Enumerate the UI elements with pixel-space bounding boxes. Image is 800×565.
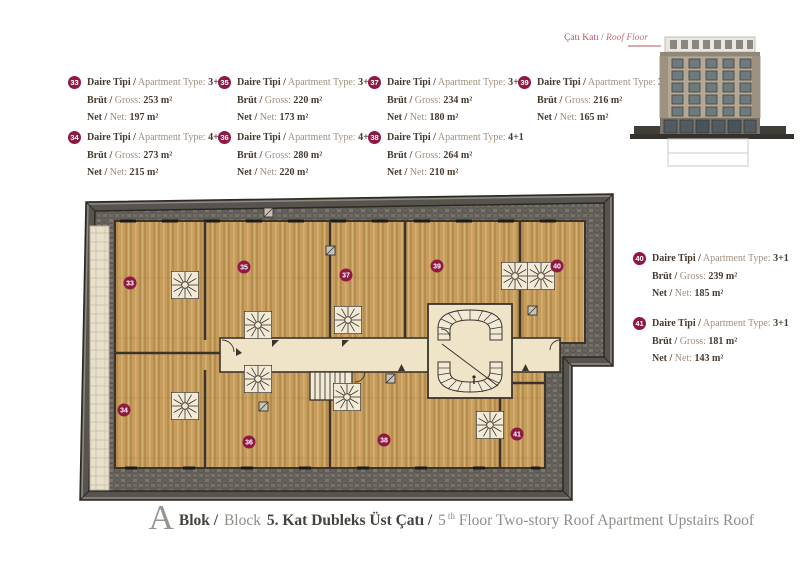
net-line: Net / Net: 143 m²: [652, 350, 793, 368]
gross-label-en: Gross:: [115, 150, 141, 161]
gross-label-en: Gross:: [415, 95, 441, 106]
apartment-type-line: Daire Tipi / Apartment Type: 3+1: [652, 250, 793, 268]
gross-label-en: Gross:: [680, 271, 706, 282]
block-letter: A: [149, 498, 174, 537]
net-label-tr: Net /: [652, 288, 672, 299]
central-core: [428, 304, 512, 398]
svg-text:35: 35: [240, 265, 248, 272]
cornice: [660, 52, 760, 56]
plan-badge-41: 41: [511, 428, 524, 441]
title-floor-rest: Floor Two-story Roof Apartment Upstairs …: [455, 512, 754, 529]
net-label-en: Net:: [560, 112, 577, 123]
gross-label-en: Gross:: [415, 150, 441, 161]
net-label-en: Net:: [675, 353, 692, 364]
net-label-tr: Net /: [652, 353, 672, 364]
gross-label-tr: Brüt /: [387, 95, 412, 106]
net-label-en: Net:: [260, 112, 277, 123]
gross-value: 264 m²: [443, 150, 472, 161]
gross-label-en: Gross:: [265, 150, 291, 161]
type-label-tr: Daire Tipi /: [87, 77, 136, 88]
net-value: 143 m²: [695, 353, 724, 364]
type-value: 3+1: [773, 253, 789, 264]
apartment-info-35: 35 Daire Tipi / Apartment Type: 3+1 Brüt…: [218, 74, 378, 127]
plan-badge-37: 37: [340, 269, 353, 282]
plan-badge-40: 40: [551, 260, 564, 273]
plan-badge-36: 36: [243, 436, 256, 449]
type-label-tr: Daire Tipi /: [87, 132, 136, 143]
gross-value: 181 m²: [708, 336, 737, 347]
plan-badge-34: 34: [118, 404, 131, 417]
apartment-type-line: Daire Tipi / Apartment Type: 4+1: [387, 129, 528, 147]
apartment-number-badge: 39: [518, 76, 531, 89]
floor-plan: 33 35 37 39 40 34 36 38 41: [60, 188, 620, 510]
apartment-number-badge: 41: [633, 317, 646, 330]
roof-floor-level: [665, 37, 755, 52]
gross-value: 273 m²: [143, 150, 172, 161]
apartment-info-41: 41 Daire Tipi / Apartment Type: 3+1 Brüt…: [633, 315, 793, 368]
apartment-type-line: Daire Tipi / Apartment Type: 4+1: [87, 129, 228, 147]
apartment-number-badge: 33: [68, 76, 81, 89]
gross-label-tr: Brüt /: [652, 336, 677, 347]
ground-floor: [634, 118, 786, 134]
type-label-en: Apartment Type:: [438, 132, 506, 143]
svg-text:37: 37: [342, 273, 350, 280]
apartment-type-line: Daire Tipi / Apartment Type: 3+1: [652, 315, 793, 333]
apartment-number-badge: 36: [218, 131, 231, 144]
gross-line: Brüt / Gross: 253 m²: [87, 92, 228, 110]
gross-label-tr: Brüt /: [537, 95, 562, 106]
net-value: 180 m²: [430, 112, 459, 123]
net-value: 185 m²: [695, 288, 724, 299]
net-line: Net / Net: 210 m²: [387, 164, 528, 182]
apartment-number-badge: 38: [368, 131, 381, 144]
title-floor-ordinal: th: [448, 511, 455, 521]
net-value: 210 m²: [430, 167, 459, 178]
basement-outline: [668, 139, 748, 166]
type-label-en: Apartment Type:: [703, 253, 771, 264]
type-label-tr: Daire Tipi /: [237, 77, 286, 88]
gross-value: 220 m²: [293, 95, 322, 106]
net-value: 197 m²: [130, 112, 159, 123]
svg-text:38: 38: [380, 438, 388, 445]
plan-badge-35: 35: [238, 261, 251, 274]
type-label-en: Apartment Type:: [288, 77, 356, 88]
gross-value: 280 m²: [293, 150, 322, 161]
svg-text:36: 36: [245, 440, 253, 447]
net-label-en: Net:: [410, 167, 427, 178]
gross-value: 239 m²: [708, 271, 737, 282]
apartment-type-line: Daire Tipi / Apartment Type: 4+1: [237, 129, 378, 147]
gross-label-en: Gross:: [680, 336, 706, 347]
gross-label-tr: Brüt /: [387, 150, 412, 161]
net-value: 215 m²: [130, 167, 159, 178]
title-floor-tr: 5. Kat Dubleks Üst Çatı /: [267, 512, 432, 529]
title-blok-tr: Blok /: [179, 512, 218, 529]
type-label-en: Apartment Type:: [138, 77, 206, 88]
type-value: 3+1: [773, 318, 789, 329]
building-elevation: [628, 26, 796, 168]
net-line: Net / Net: 220 m²: [237, 164, 378, 182]
type-label-tr: Daire Tipi /: [387, 77, 436, 88]
brochure-page: 33 Daire Tipi / Apartment Type: 3+1 Brüt…: [0, 0, 800, 565]
net-line: Net / Net: 215 m²: [87, 164, 228, 182]
apartment-type-line: Daire Tipi / Apartment Type: 3+1: [237, 74, 378, 92]
type-label-tr: Daire Tipi /: [237, 132, 286, 143]
gross-line: Brüt / Gross: 264 m²: [387, 147, 528, 165]
net-line: Net / Net: 173 m²: [237, 109, 378, 127]
type-label-tr: Daire Tipi /: [387, 132, 436, 143]
apartment-info-34: 34 Daire Tipi / Apartment Type: 4+1 Brüt…: [68, 129, 228, 182]
gross-value: 253 m²: [143, 95, 172, 106]
type-value: 4+1: [508, 132, 524, 143]
net-value: 220 m²: [280, 167, 309, 178]
apartment-number-badge: 35: [218, 76, 231, 89]
net-label-tr: Net /: [387, 112, 407, 123]
apartment-number-badge: 40: [633, 252, 646, 265]
apartment-info-37: 37 Daire Tipi / Apartment Type: 3+1 Brüt…: [368, 74, 528, 127]
svg-text:34: 34: [120, 408, 128, 415]
gross-label-tr: Brüt /: [87, 95, 112, 106]
title-floor-number: 5: [438, 512, 446, 529]
type-label-tr: Daire Tipi /: [537, 77, 586, 88]
terrace-walkway: [90, 226, 109, 490]
gross-value: 234 m²: [443, 95, 472, 106]
apartment-number-badge: 34: [68, 131, 81, 144]
apartment-type-line: Daire Tipi / Apartment Type: 3+1: [87, 74, 228, 92]
page-title: ABlok / Block 5. Kat Dubleks Üst Çatı / …: [149, 500, 758, 535]
type-label-tr: Daire Tipi /: [652, 253, 701, 264]
svg-text:33: 33: [126, 281, 134, 288]
net-line: Net / Net: 185 m²: [652, 285, 793, 303]
net-label-tr: Net /: [537, 112, 557, 123]
gross-label-tr: Brüt /: [237, 150, 262, 161]
net-value: 173 m²: [280, 112, 309, 123]
net-label-en: Net:: [110, 167, 127, 178]
net-label-tr: Net /: [87, 167, 107, 178]
type-label-tr: Daire Tipi /: [652, 318, 701, 329]
gross-line: Brüt / Gross: 273 m²: [87, 147, 228, 165]
apartment-info-36: 36 Daire Tipi / Apartment Type: 4+1 Brüt…: [218, 129, 378, 182]
ground-line: [630, 134, 794, 139]
title-blok-en: Block: [224, 512, 261, 529]
net-line: Net / Net: 180 m²: [387, 109, 528, 127]
net-line: Net / Net: 197 m²: [87, 109, 228, 127]
net-label-en: Net:: [410, 112, 427, 123]
type-label-en: Apartment Type:: [703, 318, 771, 329]
apartment-number-badge: 37: [368, 76, 381, 89]
net-label-en: Net:: [110, 112, 127, 123]
svg-text:41: 41: [513, 432, 521, 439]
net-label-tr: Net /: [87, 112, 107, 123]
net-label-tr: Net /: [387, 167, 407, 178]
type-label-en: Apartment Type:: [138, 132, 206, 143]
plan-badge-38: 38: [378, 434, 391, 447]
gross-line: Brüt / Gross: 280 m²: [237, 147, 378, 165]
svg-text:39: 39: [433, 264, 441, 271]
gross-label-en: Gross:: [265, 95, 291, 106]
gross-label-en: Gross:: [565, 95, 591, 106]
net-label-en: Net:: [260, 167, 277, 178]
net-value: 165 m²: [580, 112, 609, 123]
apartment-info-33: 33 Daire Tipi / Apartment Type: 3+1 Brüt…: [68, 74, 228, 127]
gross-value: 216 m²: [593, 95, 622, 106]
facade: [660, 56, 760, 118]
gross-line: Brüt / Gross: 220 m²: [237, 92, 378, 110]
plan-badge-39: 39: [431, 260, 444, 273]
apartment-info-38: 38 Daire Tipi / Apartment Type: 4+1 Brüt…: [368, 129, 528, 182]
net-label-tr: Net /: [237, 112, 257, 123]
plan-badge-33: 33: [124, 277, 137, 290]
gross-label-en: Gross:: [115, 95, 141, 106]
type-label-en: Apartment Type:: [438, 77, 506, 88]
roof-floor-label-tr: Çatı Katı /: [564, 33, 604, 43]
type-label-en: Apartment Type:: [288, 132, 356, 143]
gross-line: Brüt / Gross: 234 m²: [387, 92, 528, 110]
gross-label-tr: Brüt /: [87, 150, 112, 161]
apartment-type-line: Daire Tipi / Apartment Type: 3+1: [387, 74, 528, 92]
svg-text:40: 40: [553, 264, 561, 271]
net-label-tr: Net /: [237, 167, 257, 178]
gross-label-tr: Brüt /: [237, 95, 262, 106]
net-label-en: Net:: [675, 288, 692, 299]
gross-line: Brüt / Gross: 239 m²: [652, 268, 793, 286]
gross-line: Brüt / Gross: 181 m²: [652, 333, 793, 351]
title-floor-en: 5th Floor Two-story Roof Apartment Upsta…: [438, 512, 756, 529]
gross-label-tr: Brüt /: [652, 271, 677, 282]
apartment-info-40: 40 Daire Tipi / Apartment Type: 3+1 Brüt…: [633, 250, 793, 303]
